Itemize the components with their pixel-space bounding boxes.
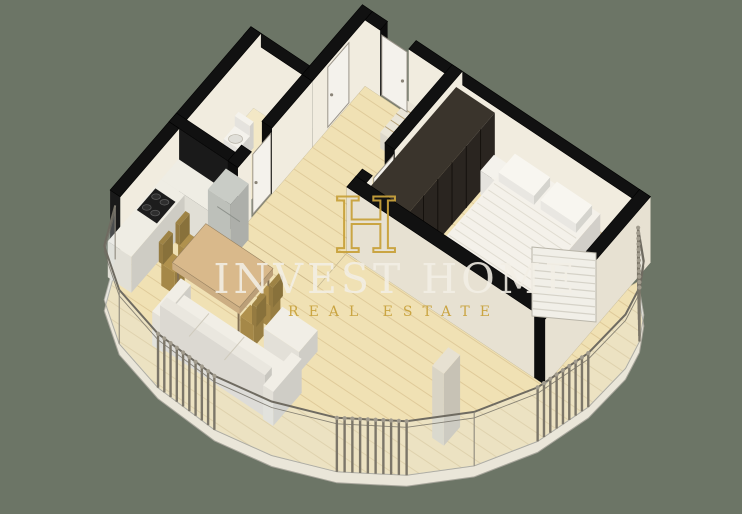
door-handle — [330, 93, 333, 96]
slat-bead — [637, 253, 641, 257]
slat-bead — [637, 269, 641, 273]
slat-bead — [637, 264, 641, 268]
slat-bead — [200, 364, 204, 368]
slat-bead — [580, 355, 584, 359]
door-handle — [401, 79, 404, 82]
slat-bead — [397, 419, 401, 423]
slat-bead — [561, 368, 565, 372]
slat-bead — [181, 350, 185, 354]
slat-bead — [350, 417, 354, 421]
slat-bead — [637, 280, 641, 284]
slat-bead — [335, 416, 339, 420]
watermark-tagline: REAL ESTATE — [288, 304, 500, 320]
toilet-tank — [250, 122, 254, 152]
slat-bead — [168, 341, 172, 345]
slat-bead — [374, 418, 378, 422]
slat-bead — [636, 242, 640, 246]
slat-bead — [156, 332, 160, 336]
slat-bead — [343, 416, 347, 420]
slat-bead — [636, 236, 640, 240]
watermark-brand-name: INVEST HOME — [213, 255, 578, 303]
slat-bead — [389, 418, 393, 422]
slat-bead — [381, 418, 385, 422]
slat-bead — [206, 369, 210, 373]
slat-bead — [586, 351, 590, 355]
stove-burner — [160, 199, 169, 205]
slat-bead — [637, 247, 641, 251]
slat-bead — [175, 346, 179, 350]
stove-burner — [152, 194, 161, 200]
slat-bead — [405, 419, 409, 423]
slat-bead — [187, 355, 191, 359]
slat-bead — [212, 374, 216, 378]
slat-bead — [636, 226, 640, 230]
isometric-floor-plan-rendering: H INVEST HOME REAL ESTATE — [0, 0, 742, 514]
slat-bead — [637, 285, 641, 289]
slat-bead — [637, 275, 641, 279]
slat-bead — [548, 377, 552, 381]
stove-burner — [142, 205, 151, 211]
slat-bead — [555, 372, 559, 376]
door-handle — [254, 181, 257, 184]
slat-bead — [193, 360, 197, 364]
slat-bead — [162, 336, 166, 340]
floor-plan-canvas: H INVEST HOME REAL ESTATE — [0, 0, 742, 514]
slat-bead — [536, 385, 540, 389]
slat-bead — [636, 231, 640, 235]
slat-bead — [366, 417, 370, 421]
slat-bead — [567, 364, 571, 368]
toilet-seat — [229, 135, 243, 144]
slat-bead — [574, 360, 578, 364]
stove-burner — [151, 210, 160, 216]
slat-bead — [358, 417, 362, 421]
slat-bead — [542, 381, 546, 385]
slat-bead — [637, 258, 641, 262]
